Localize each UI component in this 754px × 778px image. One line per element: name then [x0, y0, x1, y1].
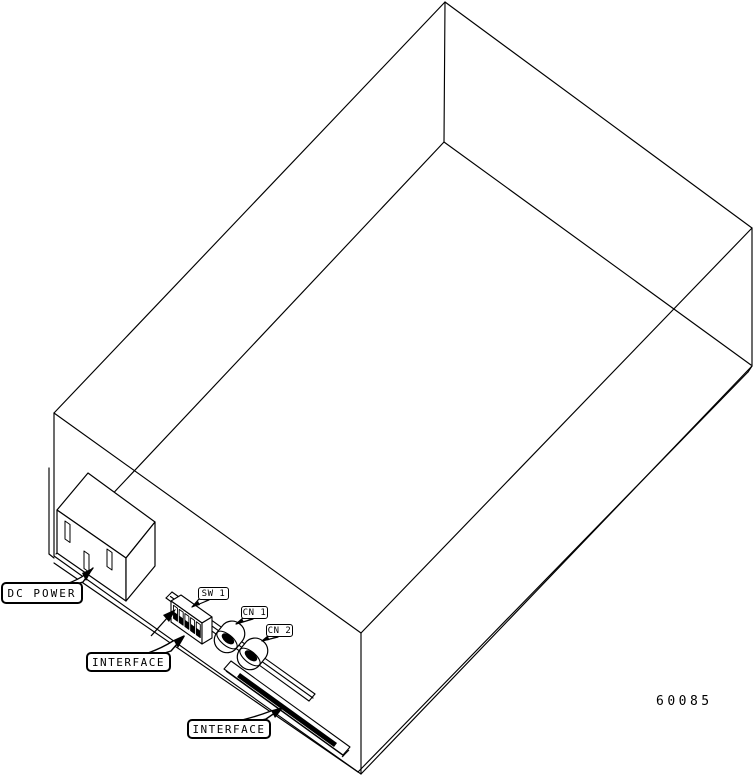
label-interface-upper: INTERFACE: [86, 652, 171, 672]
dip-switch-sw1: [171, 595, 212, 644]
left-corner-foot: [49, 554, 54, 558]
label-dc-power: DC POWER: [1, 582, 83, 604]
figure-number: 60085: [656, 694, 713, 709]
slot-right-cap: [309, 694, 315, 701]
dc-power-slot-3: [107, 549, 112, 570]
top-rim-front-right-edge: [361, 228, 752, 633]
interior-floor-right-edge: [444, 142, 751, 365]
label-cn1: CN 1: [241, 606, 268, 619]
dc-power-slot-2: [84, 551, 89, 572]
base-lip-right-edge: [358, 372, 748, 772]
top-rim-left-edge: [54, 2, 445, 413]
isometric-chassis-figure: DC POWER SW 1 CN 1 CN 2 INTERFACE INTERF…: [0, 0, 754, 778]
interior-corner-vertical: [444, 2, 445, 142]
label-cn2: CN 2: [266, 624, 293, 637]
dc-power-slot-1: [65, 521, 70, 543]
top-rim-right-edge: [445, 2, 752, 228]
slot-right-foot: [342, 750, 349, 757]
interface-slot-lower: [224, 661, 350, 757]
label-sw1: SW 1: [198, 587, 229, 600]
label-interface-lower: INTERFACE: [187, 719, 271, 739]
bottom-front-right-edge: [361, 366, 752, 774]
